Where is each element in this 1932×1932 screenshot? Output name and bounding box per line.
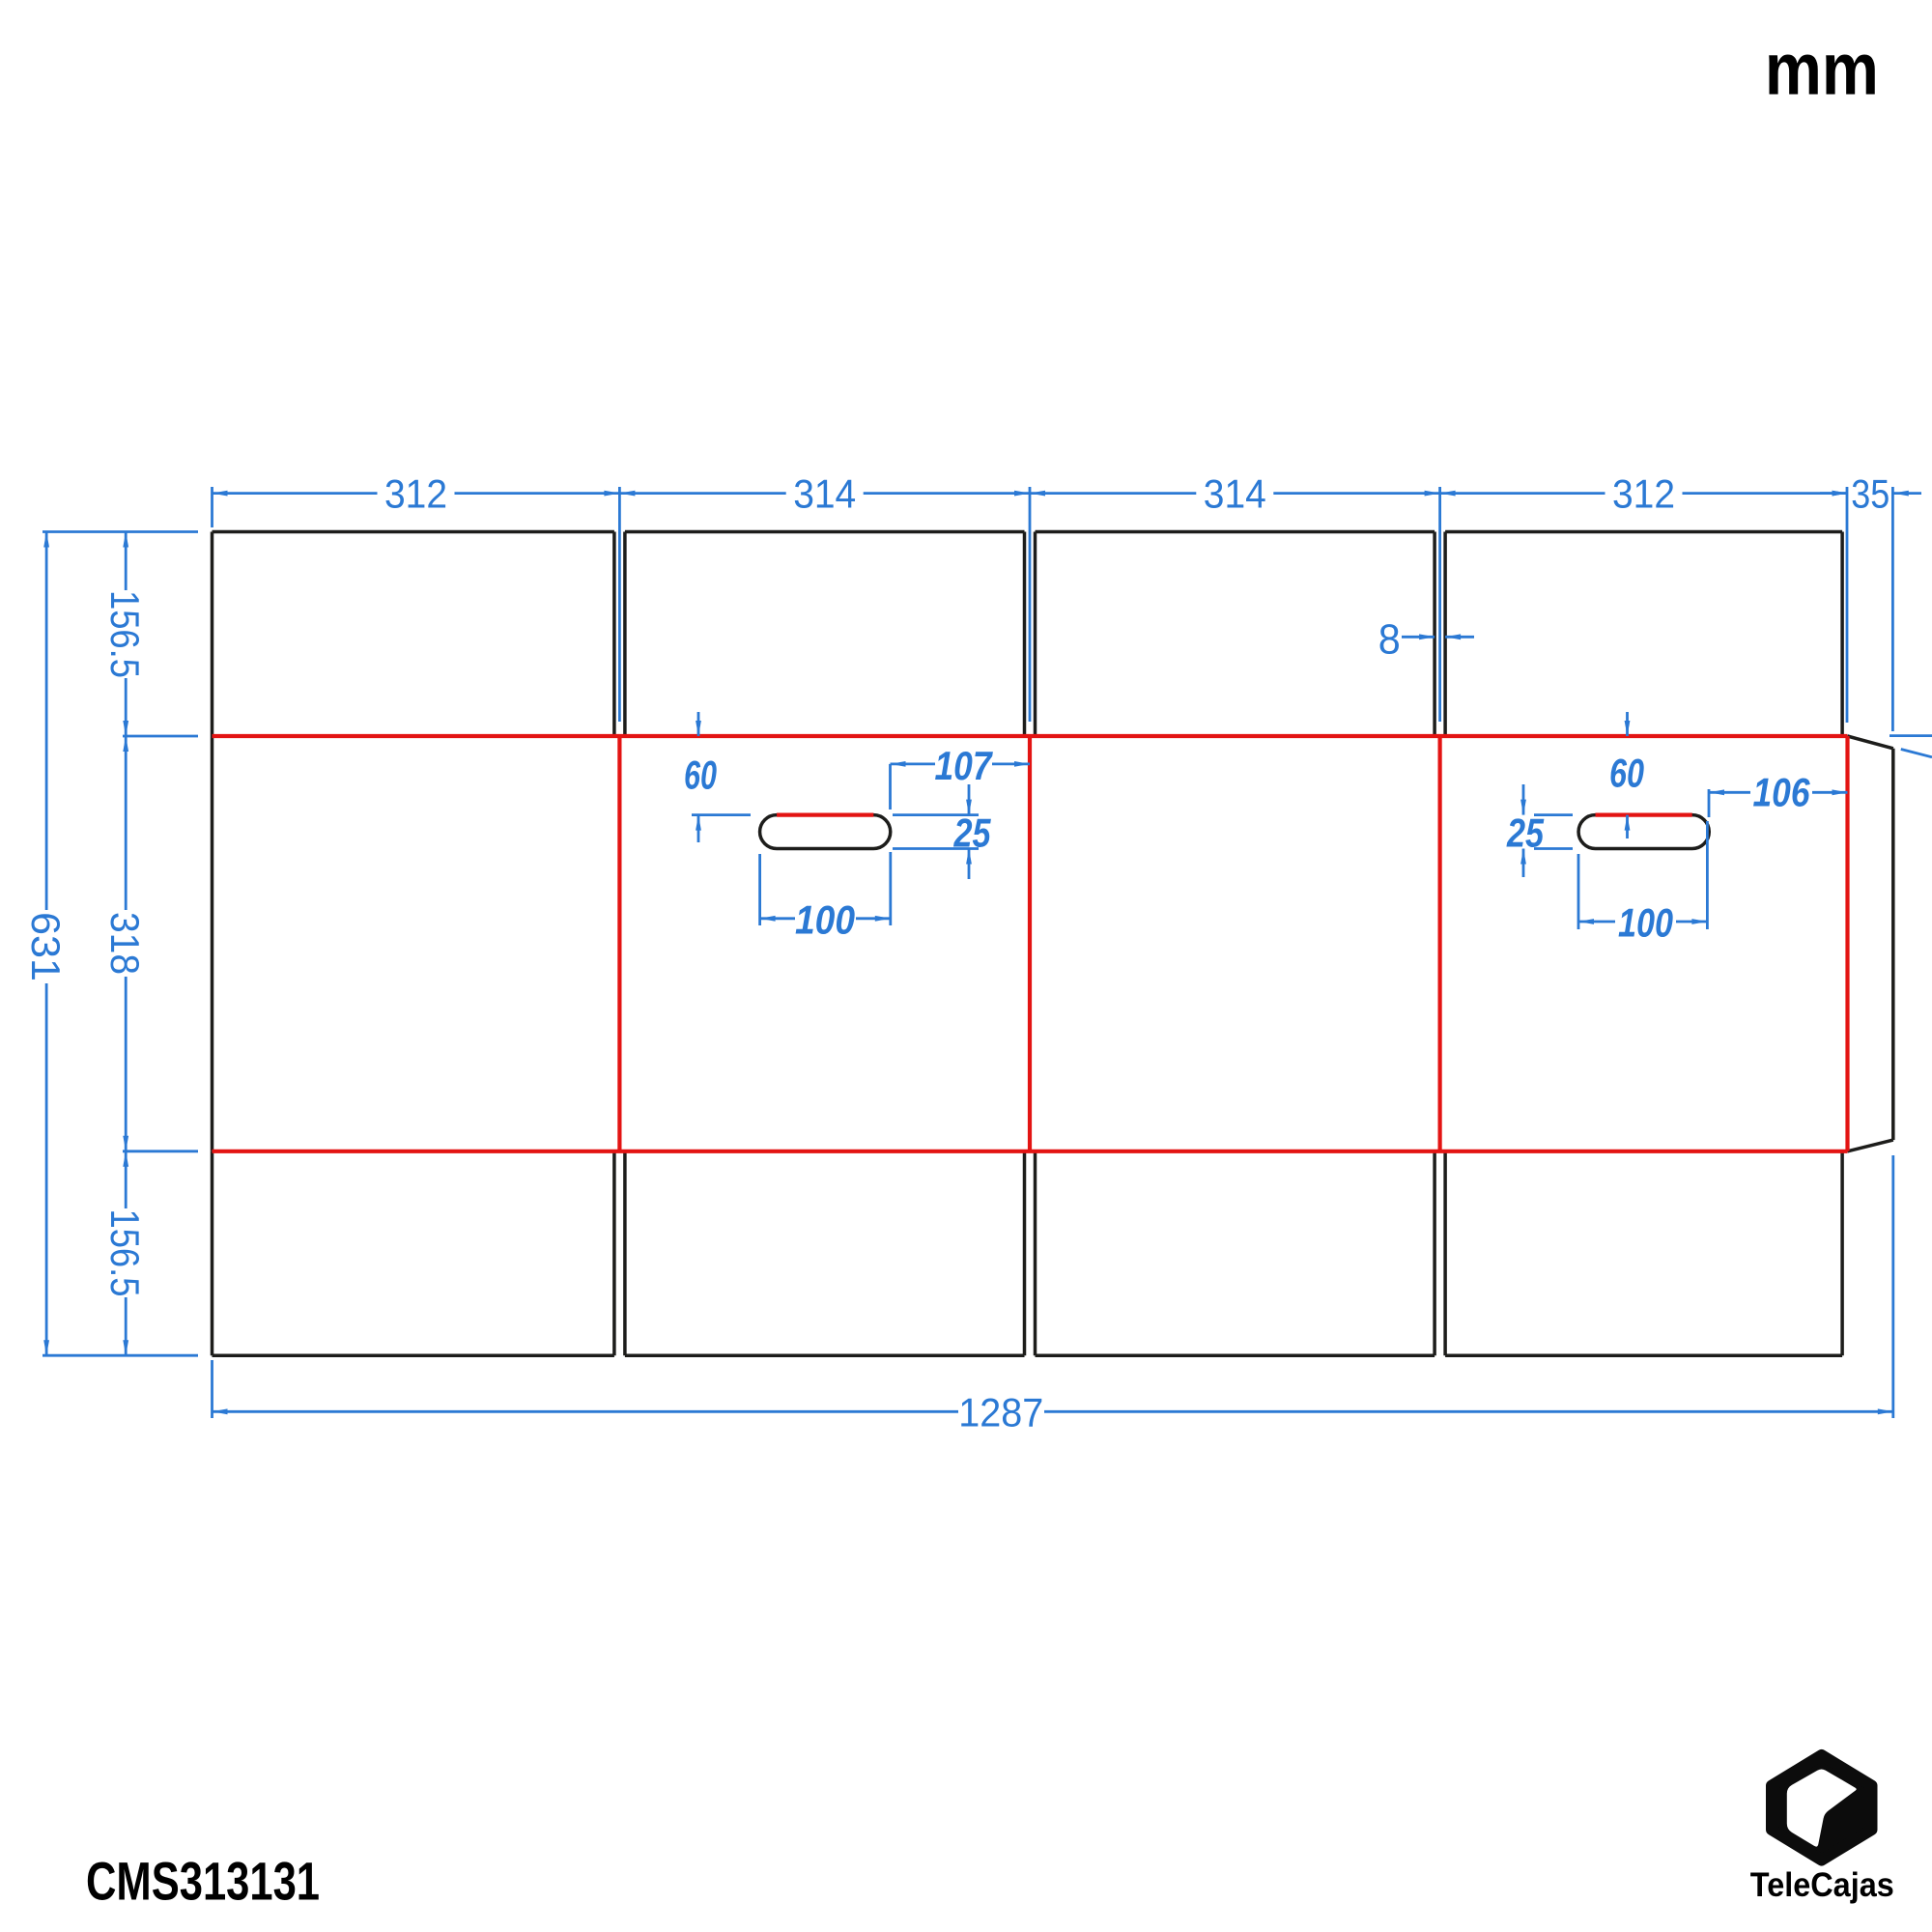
svg-text:106: 106 [1753,769,1811,814]
svg-text:312: 312 [384,471,447,517]
svg-text:156.5: 156.5 [102,590,148,678]
svg-text:631: 631 [23,912,69,981]
svg-text:100: 100 [1618,900,1673,946]
svg-text:60: 60 [684,753,717,798]
svg-text:318: 318 [102,912,148,975]
svg-text:1287: 1287 [958,1390,1043,1435]
svg-text:25: 25 [1506,810,1544,856]
svg-text:314: 314 [793,471,856,517]
svg-text:35: 35 [1851,471,1889,517]
svg-text:107: 107 [935,743,993,788]
svg-text:mm: mm [1765,29,1879,111]
svg-text:156.5: 156.5 [102,1209,148,1297]
svg-text:60: 60 [1609,751,1644,796]
svg-text:314: 314 [1204,471,1266,517]
svg-text:CMS313131: CMS313131 [86,1851,320,1912]
svg-text:100: 100 [795,897,855,943]
svg-text:312: 312 [1612,471,1675,517]
svg-text:25: 25 [953,810,991,856]
svg-text:8: 8 [1378,616,1401,664]
svg-text:TeleCajas: TeleCajas [1750,1866,1894,1904]
